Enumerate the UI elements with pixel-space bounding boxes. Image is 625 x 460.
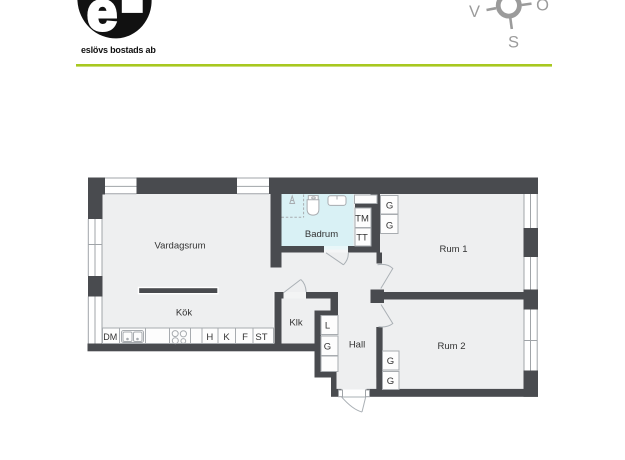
svg-text:ST: ST — [255, 332, 267, 343]
svg-text:H: H — [206, 332, 213, 343]
svg-text:Rum 2: Rum 2 — [438, 341, 466, 352]
svg-text:G: G — [386, 220, 393, 231]
svg-text:G: G — [324, 341, 331, 352]
svg-text:G: G — [387, 376, 394, 387]
svg-text:TM: TM — [355, 213, 369, 224]
svg-text:G: G — [387, 356, 394, 367]
svg-text:Vardagsrum: Vardagsrum — [154, 241, 205, 252]
svg-text:O: O — [536, 0, 549, 15]
svg-text:TT: TT — [356, 233, 368, 244]
svg-text:Klk: Klk — [289, 318, 302, 329]
svg-text:Kök: Kök — [176, 307, 193, 318]
svg-text:S: S — [508, 34, 519, 52]
svg-text:L: L — [325, 320, 330, 331]
svg-text:e: e — [87, 0, 118, 42]
svg-text:eslövs bostads ab: eslövs bostads ab — [81, 45, 156, 55]
svg-text:Hall: Hall — [349, 340, 365, 351]
svg-text:DM: DM — [103, 332, 117, 342]
svg-text:F: F — [242, 332, 248, 343]
svg-text:K: K — [223, 332, 230, 343]
svg-text:G: G — [386, 201, 393, 212]
svg-text:V: V — [469, 3, 480, 21]
svg-text:Badrum: Badrum — [305, 229, 338, 240]
svg-text:Rum 1: Rum 1 — [440, 244, 468, 255]
